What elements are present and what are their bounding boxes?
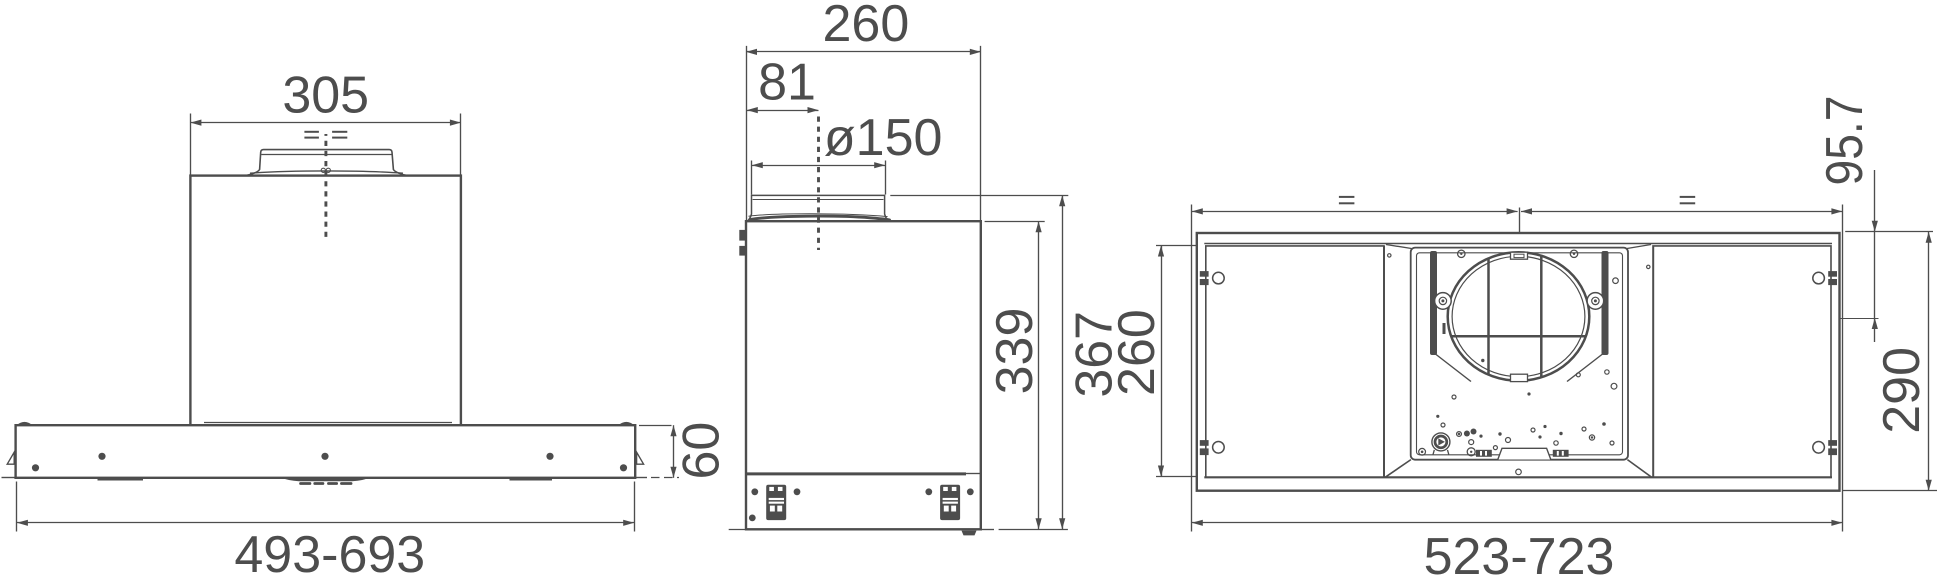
svg-text:260: 260 [1108, 309, 1166, 396]
svg-text:290: 290 [1873, 347, 1931, 434]
svg-text:ø150: ø150 [824, 109, 943, 167]
svg-text:339: 339 [986, 308, 1044, 395]
svg-text:60: 60 [673, 422, 731, 480]
svg-text:493-693: 493-693 [234, 526, 425, 578]
svg-text:260: 260 [823, 0, 910, 53]
svg-text:305: 305 [282, 66, 369, 124]
svg-text:81: 81 [758, 54, 816, 112]
svg-text:523-723: 523-723 [1424, 528, 1615, 578]
svg-text:95.7: 95.7 [1816, 96, 1874, 186]
